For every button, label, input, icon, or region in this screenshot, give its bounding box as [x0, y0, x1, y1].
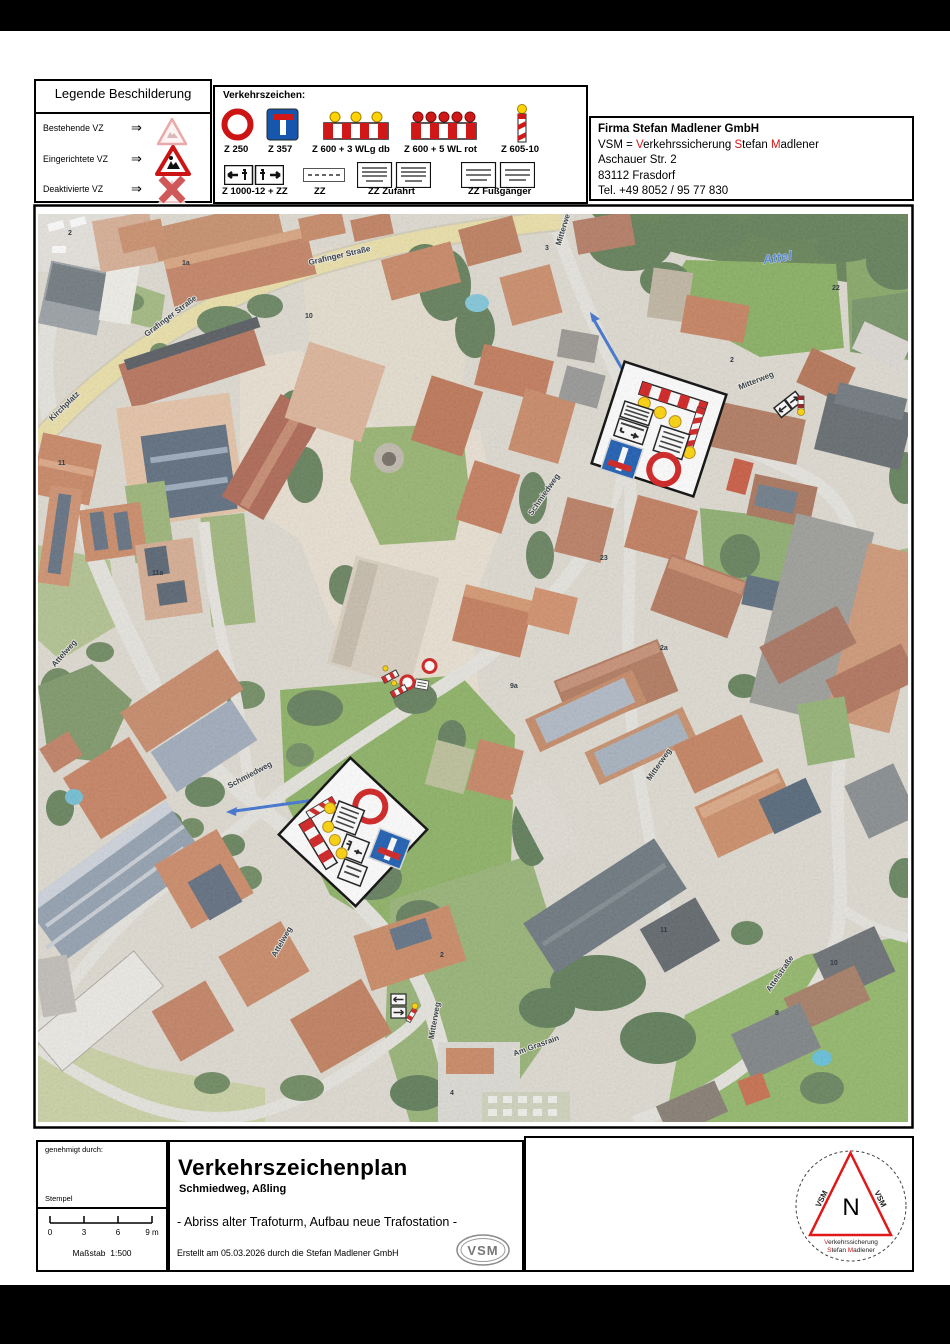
svg-text:3: 3 — [82, 1228, 87, 1237]
svg-text:0: 0 — [48, 1228, 53, 1237]
svg-text:N: N — [842, 1194, 859, 1221]
svg-text:Stefan Madlener: Stefan Madlener — [827, 1247, 876, 1254]
svg-text:6: 6 — [116, 1228, 121, 1237]
svg-text:9 m: 9 m — [145, 1228, 159, 1237]
svg-text:VSM: VSM — [467, 1243, 498, 1258]
svg-text:Verkehrssicherung: Verkehrssicherung — [824, 1239, 878, 1246]
